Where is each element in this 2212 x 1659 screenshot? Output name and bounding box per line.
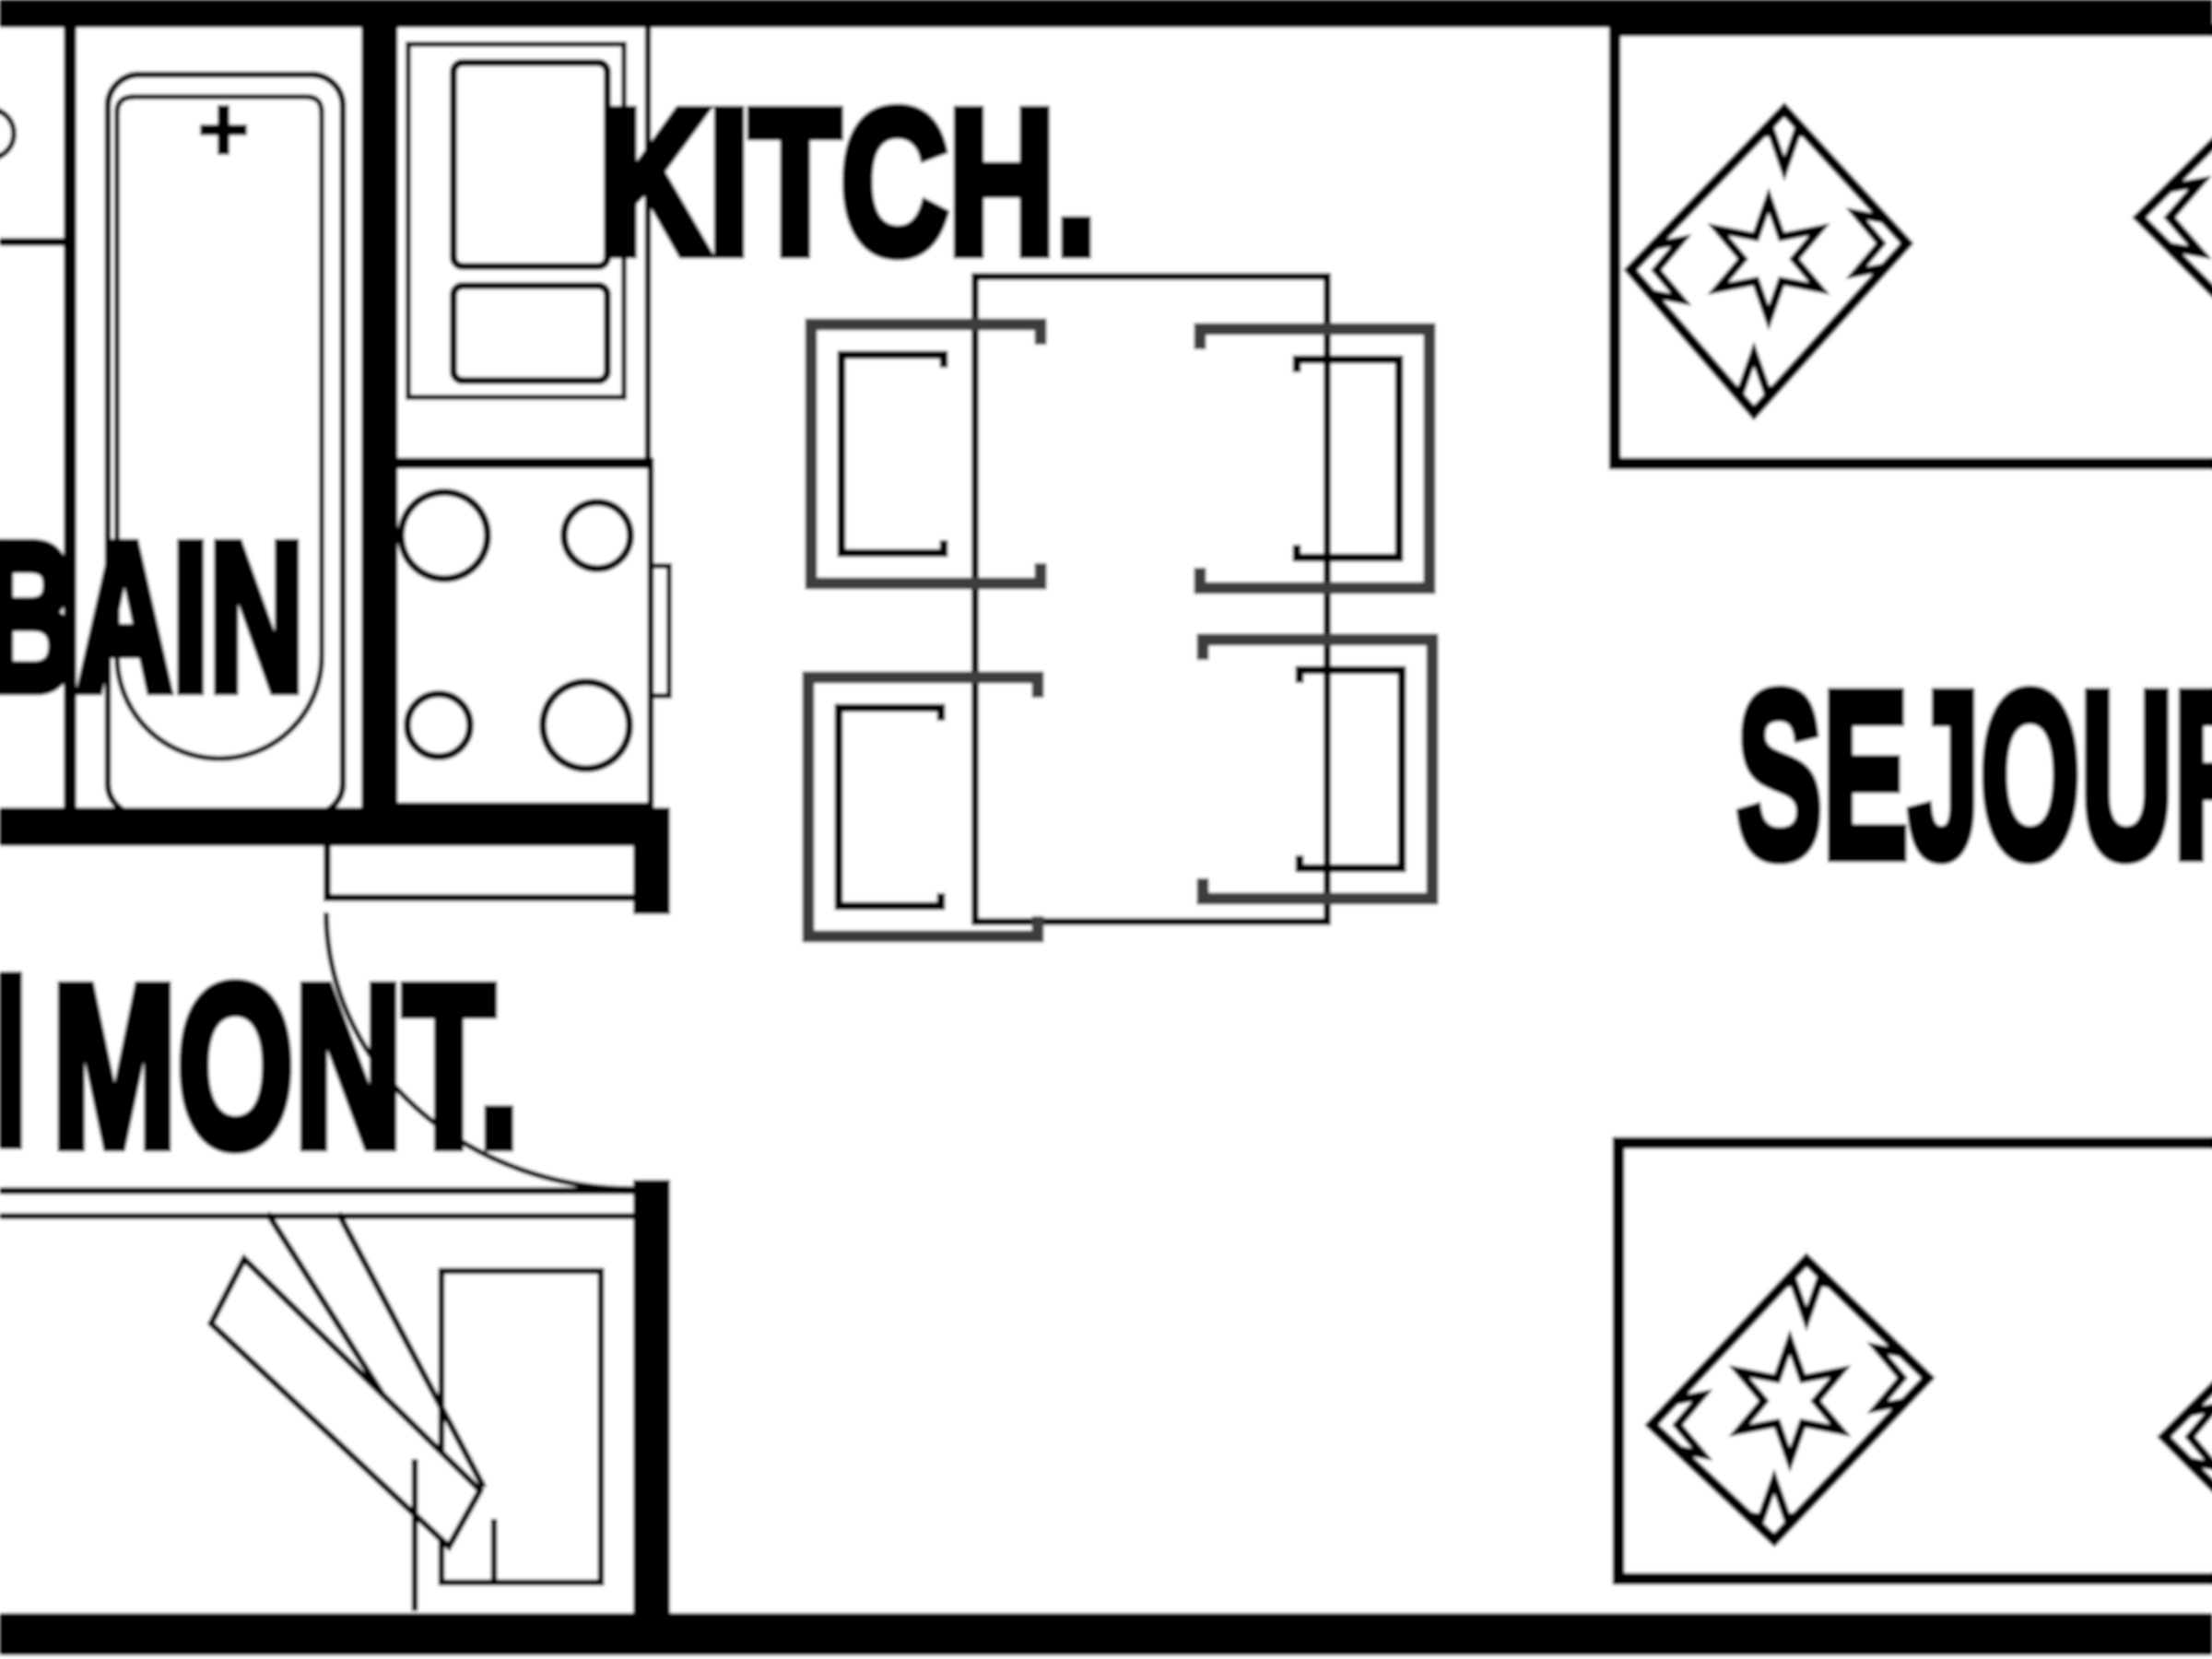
svg-text:BAIN: BAIN [0,500,304,735]
svg-text:MONT.: MONT. [52,937,520,1194]
svg-text:KITCH.: KITCH. [601,68,1097,297]
svg-text:SEJOUR: SEJOUR [1736,643,2212,907]
